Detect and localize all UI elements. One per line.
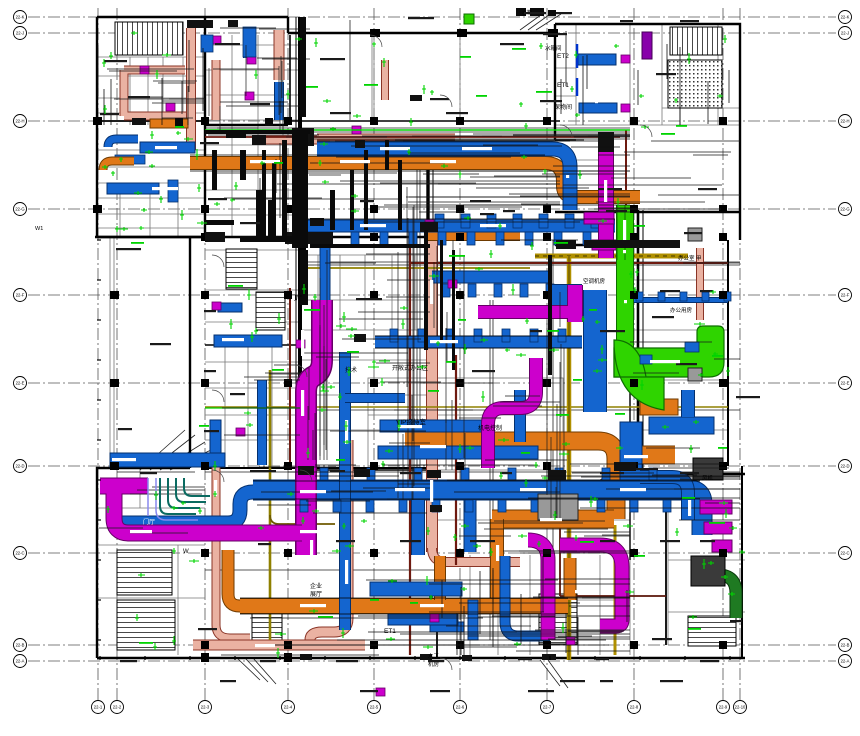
svg-text:ET1: ET1 [557, 82, 569, 89]
svg-text:展厅: 展厅 [310, 591, 322, 598]
svg-text:22-4: 22-4 [284, 705, 293, 710]
svg-text:22-G: 22-G [15, 207, 24, 212]
svg-text:22-C: 22-C [840, 551, 849, 556]
svg-text:22-F: 22-F [841, 293, 850, 298]
svg-text:企业: 企业 [310, 582, 322, 590]
svg-text:开敞式办公区: 开敞式办公区 [392, 364, 428, 372]
svg-text:办公室 甲: 办公室 甲 [678, 254, 702, 262]
svg-text:22-9: 22-9 [719, 705, 728, 710]
svg-text:VIP接待室: VIP接待室 [396, 417, 426, 426]
svg-text:22-2: 22-2 [113, 705, 122, 710]
svg-text:22-8: 22-8 [630, 705, 639, 710]
svg-text:水箱间: 水箱间 [545, 44, 562, 52]
svg-text:ET2: ET2 [557, 53, 569, 60]
svg-text:22-J: 22-J [16, 31, 24, 36]
svg-text:空调机房: 空调机房 [583, 277, 606, 285]
svg-text:22-5: 22-5 [370, 705, 379, 710]
svg-text:22-A: 22-A [841, 659, 850, 664]
svg-text:门厅: 门厅 [290, 294, 302, 302]
svg-text:22-H: 22-H [15, 119, 24, 124]
svg-text:门厅: 门厅 [143, 518, 155, 526]
svg-text:22-G: 22-G [840, 207, 849, 212]
svg-text:22-B: 22-B [841, 643, 850, 648]
svg-text:机电控制: 机电控制 [478, 424, 502, 432]
svg-text:22-3: 22-3 [201, 705, 210, 710]
svg-text:22-A: 22-A [16, 659, 25, 664]
svg-text:22-1: 22-1 [94, 705, 103, 710]
svg-text:22-K: 22-K [841, 15, 850, 20]
svg-text:22-E: 22-E [16, 381, 25, 386]
svg-text:22-D: 22-D [15, 464, 24, 469]
svg-text:22-K: 22-K [16, 15, 25, 20]
svg-text:风机: 风机 [702, 474, 714, 482]
svg-text:W: W [183, 549, 189, 555]
svg-text:22-6: 22-6 [456, 705, 465, 710]
svg-text:22-F: 22-F [16, 293, 25, 298]
svg-text:办公用房: 办公用房 [670, 306, 693, 314]
svg-text:22-C: 22-C [15, 551, 24, 556]
svg-text:保物间: 保物间 [554, 103, 572, 111]
svg-text:W1: W1 [35, 226, 43, 232]
svg-text:22-7: 22-7 [543, 705, 552, 710]
svg-text:22-J: 22-J [841, 31, 849, 36]
svg-text:ET1: ET1 [384, 628, 396, 635]
svg-text:22-10: 22-10 [735, 705, 746, 710]
svg-text:22-E: 22-E [841, 381, 850, 386]
svg-text:22-D: 22-D [840, 464, 849, 469]
svg-text:水工: 水工 [428, 652, 440, 660]
svg-text:技术: 技术 [345, 366, 357, 374]
svg-text:22-B: 22-B [16, 643, 25, 648]
svg-text:22-H: 22-H [840, 119, 849, 124]
